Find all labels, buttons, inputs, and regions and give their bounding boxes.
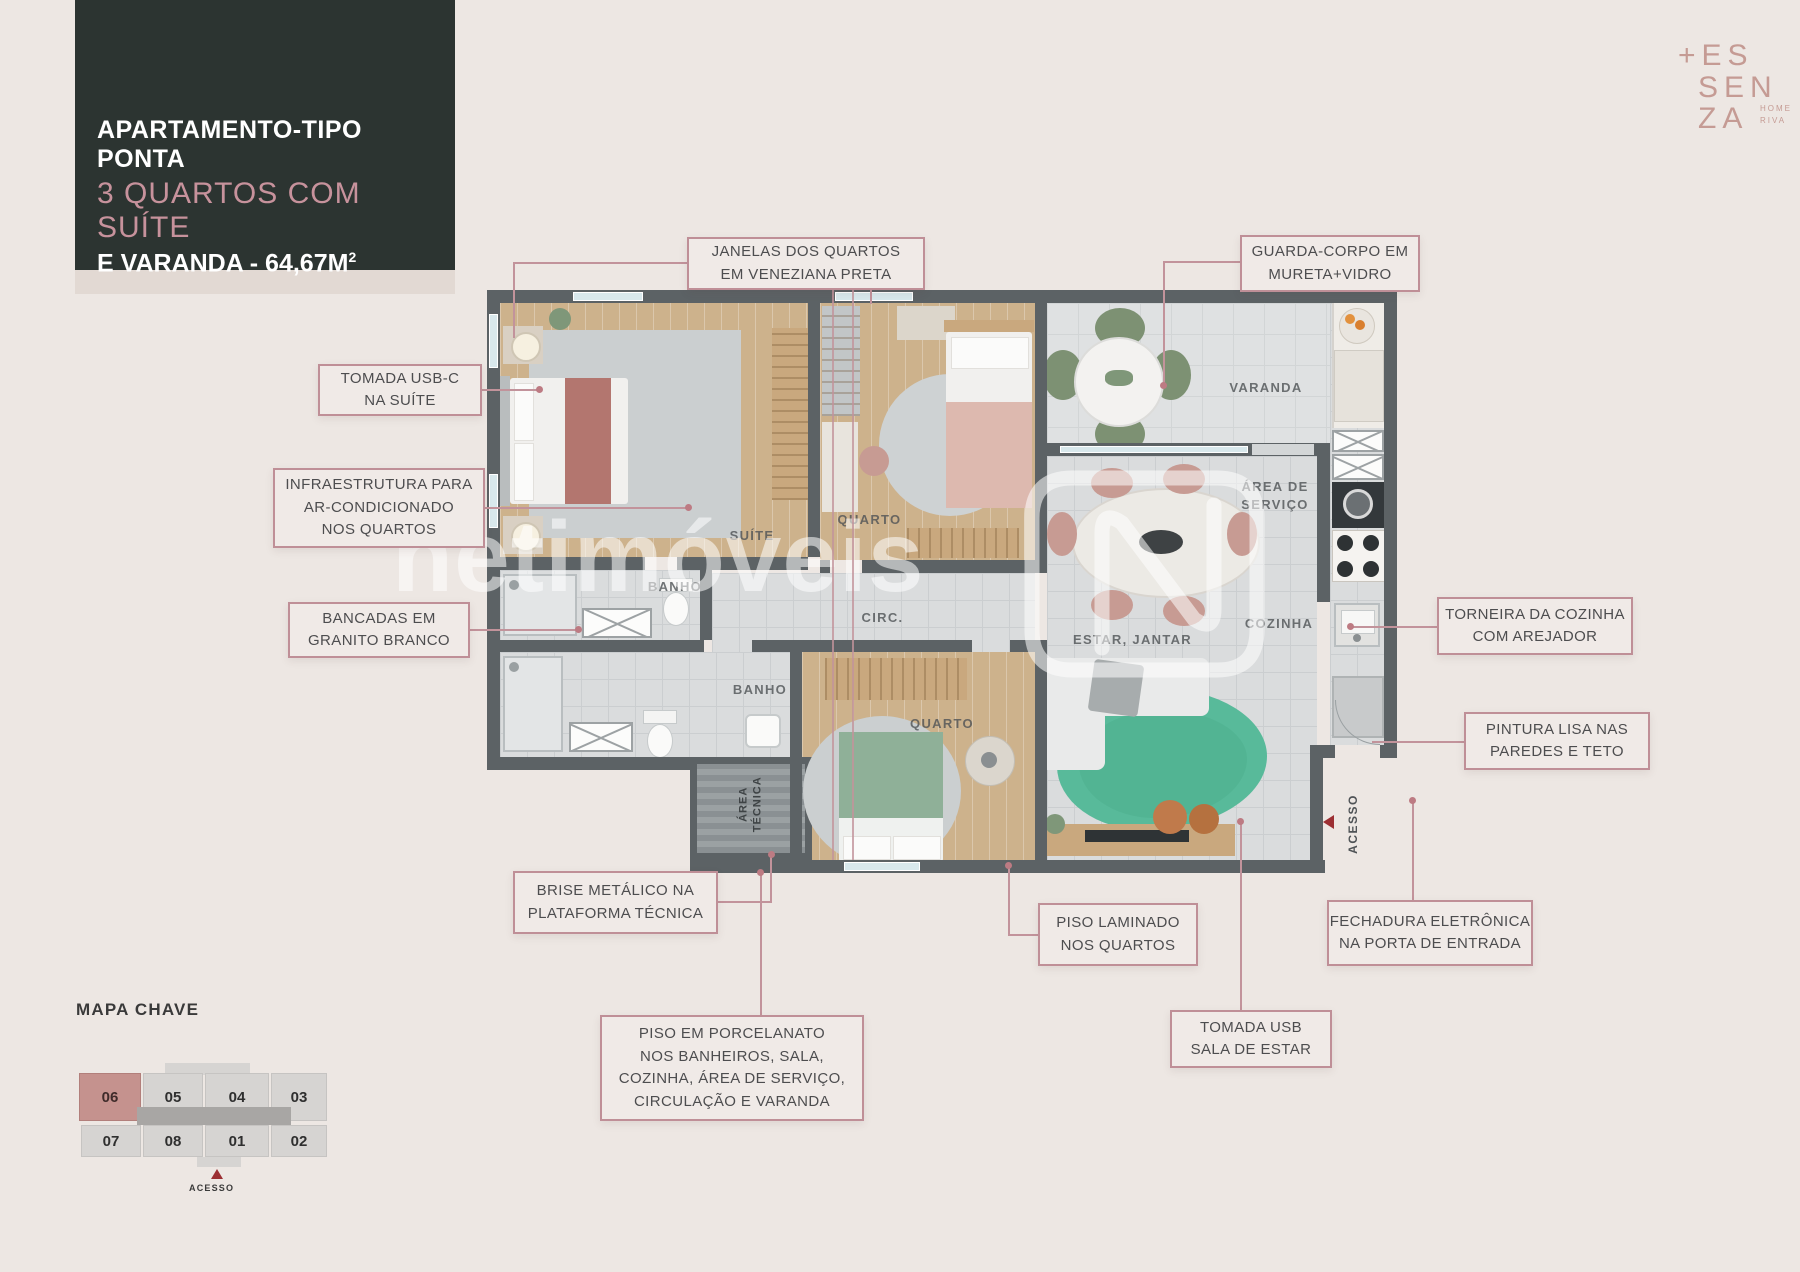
callout-torneira: TORNEIRA DA COZINHA COM AREJADOR xyxy=(1437,597,1633,655)
bedroom1-shelf xyxy=(822,306,860,416)
suite-plant xyxy=(549,308,571,330)
leader-dot xyxy=(1237,818,1244,825)
bathroom2-toilet-tank xyxy=(643,710,677,724)
suite-window xyxy=(573,292,643,301)
wall xyxy=(500,640,704,652)
service-shaft xyxy=(1332,430,1384,452)
bedroom2-pillow xyxy=(843,836,891,860)
leader-line xyxy=(852,290,854,860)
pouf xyxy=(1153,800,1187,834)
kitchen-cabinet xyxy=(1334,350,1384,422)
leader-dot xyxy=(768,851,775,858)
wall xyxy=(1310,758,1323,873)
suite-bed-headboard xyxy=(500,376,510,506)
access-arrow-icon xyxy=(1323,815,1334,829)
stove-burner xyxy=(1363,561,1379,577)
stove-burner xyxy=(1337,535,1353,551)
leader-dot xyxy=(1160,382,1167,389)
bedroom2-side-table-decor xyxy=(981,752,997,768)
callout-guarda-corpo: GUARDA-CORPO EM MURETA+VIDRO xyxy=(1240,235,1420,292)
essenza-logo: +ES SEN ZA xyxy=(1678,40,1778,135)
stove-burner xyxy=(1337,561,1353,577)
wall xyxy=(1310,745,1335,758)
leader-line xyxy=(513,262,515,338)
title-line-1: APARTAMENTO-TIPO PONTA xyxy=(97,116,455,174)
wall xyxy=(752,640,790,652)
wall xyxy=(802,640,972,652)
callout-janelas: JANELAS DOS QUARTOS EM VENEZIANA PRETA xyxy=(687,237,925,290)
leader-line xyxy=(1163,261,1240,263)
bathroom2-toilet xyxy=(647,724,673,758)
callout-porcelanato: PISO EM PORCELANATO NOS BANHEIROS, SALA,… xyxy=(600,1015,864,1121)
logo-line-1: +ES xyxy=(1678,40,1778,72)
callout-tomada-usbc: TOMADA USB-C NA SUÍTE xyxy=(318,364,482,416)
bedroom1-pillow xyxy=(951,337,1029,369)
stove-burner xyxy=(1363,535,1379,551)
callout-brise: BRISE METÁLICO NA PLATAFORMA TÉCNICA xyxy=(513,871,718,934)
fruit xyxy=(1345,314,1355,324)
suite-bed-blanket xyxy=(565,378,611,504)
bedroom2-wardrobe xyxy=(825,658,967,700)
key-map-entry-tab xyxy=(197,1157,241,1167)
callout-tomada-usb: TOMADA USB SALA DE ESTAR xyxy=(1170,1010,1332,1068)
title-line-2: 3 QUARTOS COM SUÍTE xyxy=(97,177,455,245)
washer-drum-icon xyxy=(1343,489,1373,519)
title-superscript: 2 xyxy=(348,249,356,265)
leader-line xyxy=(1008,934,1038,936)
laundry-tank xyxy=(1332,454,1384,480)
fruit xyxy=(1355,320,1365,330)
bedroom1-window xyxy=(835,292,913,301)
room-label-banho2: BANHO xyxy=(729,682,791,697)
logo-line-2: SEN xyxy=(1678,72,1778,104)
leader-dot xyxy=(1409,797,1416,804)
key-map-corridor xyxy=(137,1107,291,1125)
leader-line xyxy=(485,507,688,509)
bathroom2-sink xyxy=(745,714,781,748)
callout-fechadura: FECHADURA ELETRÔNICA NA PORTA DE ENTRADA xyxy=(1327,900,1533,966)
leader-dot xyxy=(1005,862,1012,869)
title-card: APARTAMENTO-TIPO PONTA 3 QUARTOS COM SUÍ… xyxy=(75,0,455,270)
leader-dot xyxy=(757,869,764,876)
leader-line xyxy=(1352,626,1437,628)
leader-line xyxy=(832,290,834,860)
suite-pillow xyxy=(514,443,534,501)
bedroom2-window xyxy=(844,862,920,871)
leader-line xyxy=(760,873,762,1015)
logo-line-3: ZA xyxy=(1678,103,1778,135)
leader-line xyxy=(870,290,872,304)
wall xyxy=(1380,745,1397,758)
console-plant xyxy=(1045,814,1065,834)
wall xyxy=(487,757,692,770)
access-label: ACESSO xyxy=(1343,788,1363,860)
suite-side-window xyxy=(489,314,498,368)
balcony-table-decor xyxy=(1105,370,1133,386)
room-label-varanda: VARANDA xyxy=(1222,380,1310,395)
leader-line xyxy=(1372,741,1464,743)
key-map-heading: MAPA CHAVE xyxy=(76,1000,199,1020)
leader-line xyxy=(770,855,772,903)
bedroom1-bed-headboard xyxy=(944,320,1034,332)
suite-lamp xyxy=(511,332,541,362)
wall xyxy=(1317,456,1330,602)
leader-line xyxy=(718,901,772,903)
key-map-access-label: ACESSO xyxy=(189,1183,234,1193)
key-map: 06 05 04 03 07 08 01 02 ACESSO xyxy=(79,1063,339,1198)
leader-line xyxy=(513,262,687,264)
leader-dot xyxy=(575,626,582,633)
leader-dot xyxy=(536,386,543,393)
bathroom2-vanity xyxy=(569,722,633,752)
leader-line xyxy=(1412,800,1414,900)
bedroom2-bed-blanket xyxy=(839,732,943,818)
key-map-unit-01: 01 xyxy=(205,1125,269,1157)
faucet-icon xyxy=(1353,634,1361,642)
watermark-n-logo xyxy=(1002,450,1302,705)
bedroom1-desk-chair xyxy=(859,446,889,476)
key-map-access-arrow-icon xyxy=(211,1169,223,1179)
callout-pintura: PINTURA LISA NAS PAREDES E TETO xyxy=(1464,712,1650,770)
callout-bancadas: BANCADAS EM GRANITO BRANCO xyxy=(288,602,470,658)
leader-dot xyxy=(1347,623,1354,630)
leader-dot xyxy=(685,504,692,511)
key-map-unit-08: 08 xyxy=(143,1125,203,1157)
key-map-unit-07: 07 xyxy=(81,1125,141,1157)
sink-basin xyxy=(1341,610,1375,634)
room-label-area-tecnica: ÁREA TÉCNICA xyxy=(711,784,791,824)
leader-line xyxy=(1008,866,1010,936)
callout-infraestrutura: INFRAESTRUTURA PARA AR-CONDICIONADO NOS … xyxy=(273,468,485,548)
wall xyxy=(790,640,802,860)
key-map-unit-02: 02 xyxy=(271,1125,327,1157)
title-line-3: E VARANDA - 64,67M2 xyxy=(97,249,455,278)
suite-closet xyxy=(772,328,808,500)
key-map-unit-06: 06 xyxy=(79,1073,141,1121)
leader-line xyxy=(470,629,578,631)
leader-line xyxy=(1240,822,1242,1010)
leader-line xyxy=(482,389,540,391)
pouf xyxy=(1189,804,1219,834)
bedroom2-pillow xyxy=(893,836,941,860)
leader-line xyxy=(1163,261,1165,385)
callout-piso-laminado: PISO LAMINADO NOS QUARTOS xyxy=(1038,903,1198,966)
shower-head-icon xyxy=(509,662,519,672)
room-label-quarto2: QUARTO xyxy=(907,716,977,731)
suite-pillow xyxy=(514,383,534,441)
wall xyxy=(1384,290,1397,745)
